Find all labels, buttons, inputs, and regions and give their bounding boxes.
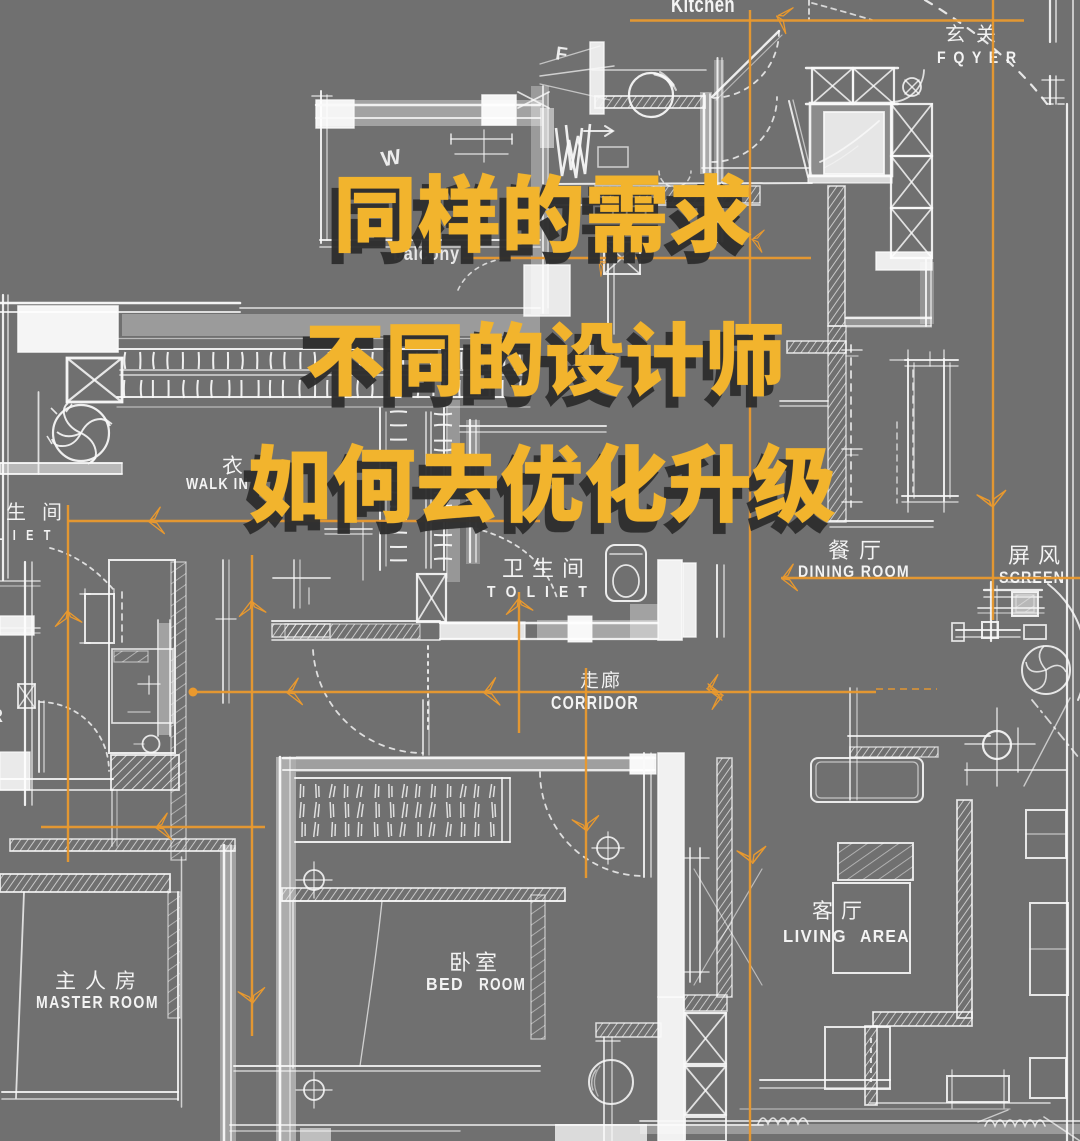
- svg-text:WALK IN: WALK IN: [186, 476, 249, 493]
- svg-text:LIVING: LIVING: [783, 926, 847, 946]
- svg-text:MASTER ROOM: MASTER ROOM: [36, 992, 159, 1012]
- svg-text:L I E T: L I E T: [0, 527, 54, 544]
- svg-text:W: W: [379, 145, 403, 171]
- svg-text:Kitchen: Kitchen: [671, 0, 735, 17]
- svg-text:BED: BED: [426, 974, 464, 994]
- svg-text:AREA: AREA: [860, 926, 910, 946]
- svg-text:CORRIDOR: CORRIDOR: [551, 693, 639, 713]
- svg-text:T O L I E T: T O L I E T: [487, 584, 590, 601]
- svg-text:R: R: [0, 706, 3, 726]
- svg-text:F Q Y E R: F Q Y E R: [937, 49, 1018, 67]
- svg-text:ROOM: ROOM: [479, 974, 526, 994]
